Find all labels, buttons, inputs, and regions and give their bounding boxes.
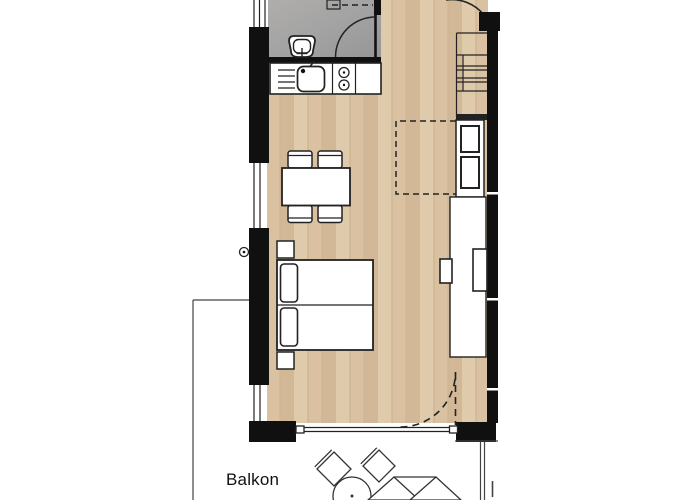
tall-cabinet-appliances [456,120,484,197]
pillow [281,264,298,302]
door-jamb-wall [374,0,381,15]
bottom-right-wall-block [456,422,496,442]
door-frame-end [450,426,458,433]
appliance-fridge [461,157,479,188]
dining-chair [288,151,312,168]
counter [270,63,381,94]
wardrobe-handle-block [440,259,452,283]
bathroom [267,0,381,63]
window-low-left [250,385,265,421]
nightstand [277,352,294,369]
wardrobe-side-panel [473,249,487,291]
top-right-wall-block [479,12,500,31]
right-wall [487,31,498,423]
bed-area [277,241,373,369]
toilet-icon [289,36,315,58]
bathroom-bottom-wall [267,57,381,63]
appliance-oven [461,126,479,152]
bottom-left-wall-block [249,421,296,442]
survey-point-icon [240,248,249,257]
kitchen-counter [270,62,381,95]
stair-landing-edge [456,114,487,120]
dining-chair [318,206,342,223]
dining-table [282,168,350,206]
dining-chair [288,206,312,223]
dining-chair [318,151,342,168]
sun-lounger [368,477,461,500]
balcony-railing [455,441,498,500]
nightstand [277,241,294,258]
balcony-furniture [315,448,461,500]
door-frame-end [296,426,304,433]
window-mid-left [250,163,265,228]
window-top-left [251,0,268,27]
balcony-chair [361,448,395,482]
floor-plan [0,0,700,500]
pillow [281,308,298,346]
floor-plan-canvas: Balkon [0,0,700,500]
balcony-label: Balkon [226,470,279,490]
bottom-wall [296,422,496,442]
bathroom-floor [267,0,381,58]
kitchen-sink-icon [298,62,325,92]
